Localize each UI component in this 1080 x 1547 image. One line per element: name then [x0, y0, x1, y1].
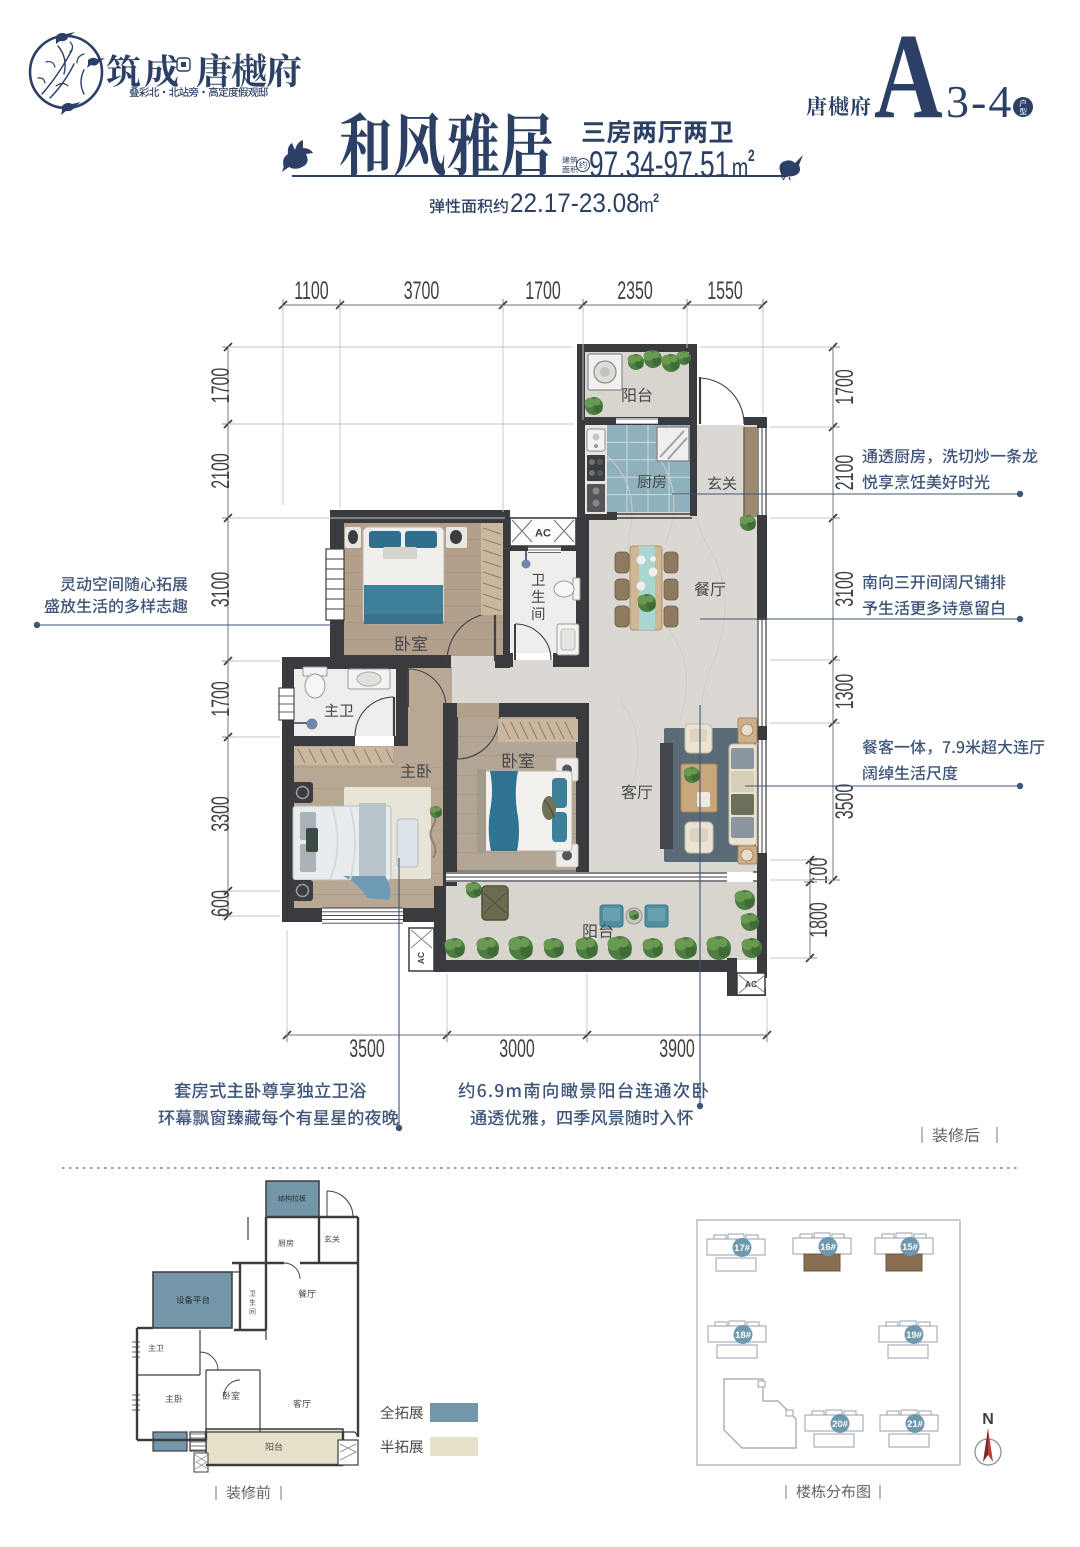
svg-text:N: N: [982, 1411, 994, 1428]
svg-text:3900: 3900: [659, 1036, 695, 1063]
svg-text:A: A: [874, 9, 943, 144]
svg-text:AC: AC: [745, 979, 757, 989]
svg-text:1700: 1700: [525, 278, 561, 305]
svg-text:1800: 1800: [806, 902, 833, 938]
svg-text:3300: 3300: [208, 796, 235, 832]
svg-text:1100: 1100: [294, 278, 328, 305]
svg-text:2100: 2100: [832, 455, 859, 491]
svg-text:1700: 1700: [208, 368, 235, 404]
svg-text:3500: 3500: [832, 784, 859, 820]
svg-text:AC: AC: [535, 528, 551, 540]
svg-text:19#: 19#: [906, 1330, 923, 1341]
svg-text:22.17-23.08: 22.17-23.08: [510, 189, 640, 218]
svg-text:2350: 2350: [617, 278, 653, 305]
svg-text:2: 2: [748, 147, 755, 165]
svg-text:21#: 21#: [907, 1419, 924, 1430]
svg-text:3-4: 3-4: [946, 76, 1013, 127]
svg-text:15#: 15#: [902, 1242, 919, 1253]
svg-text:1300: 1300: [832, 674, 859, 710]
svg-text:1700: 1700: [832, 369, 859, 405]
svg-text:20#: 20#: [832, 1419, 849, 1430]
svg-text:2: 2: [653, 193, 659, 206]
svg-text:AC: AC: [416, 952, 426, 964]
svg-text:18#: 18#: [735, 1330, 752, 1341]
svg-text:3000: 3000: [499, 1036, 535, 1063]
svg-text:3500: 3500: [349, 1036, 385, 1063]
svg-text:2100: 2100: [208, 453, 235, 489]
svg-text:m: m: [732, 153, 749, 184]
svg-text:3100: 3100: [208, 572, 235, 608]
svg-text:m: m: [639, 195, 654, 217]
svg-text:17#: 17#: [734, 1243, 751, 1254]
svg-text:16#: 16#: [820, 1242, 837, 1253]
svg-text:1700: 1700: [208, 681, 235, 717]
svg-text:97.34-97.51: 97.34-97.51: [589, 144, 729, 186]
svg-text:3100: 3100: [832, 571, 859, 607]
svg-text:1550: 1550: [707, 278, 743, 305]
svg-text:600: 600: [208, 890, 235, 917]
svg-text:3700: 3700: [404, 278, 440, 305]
